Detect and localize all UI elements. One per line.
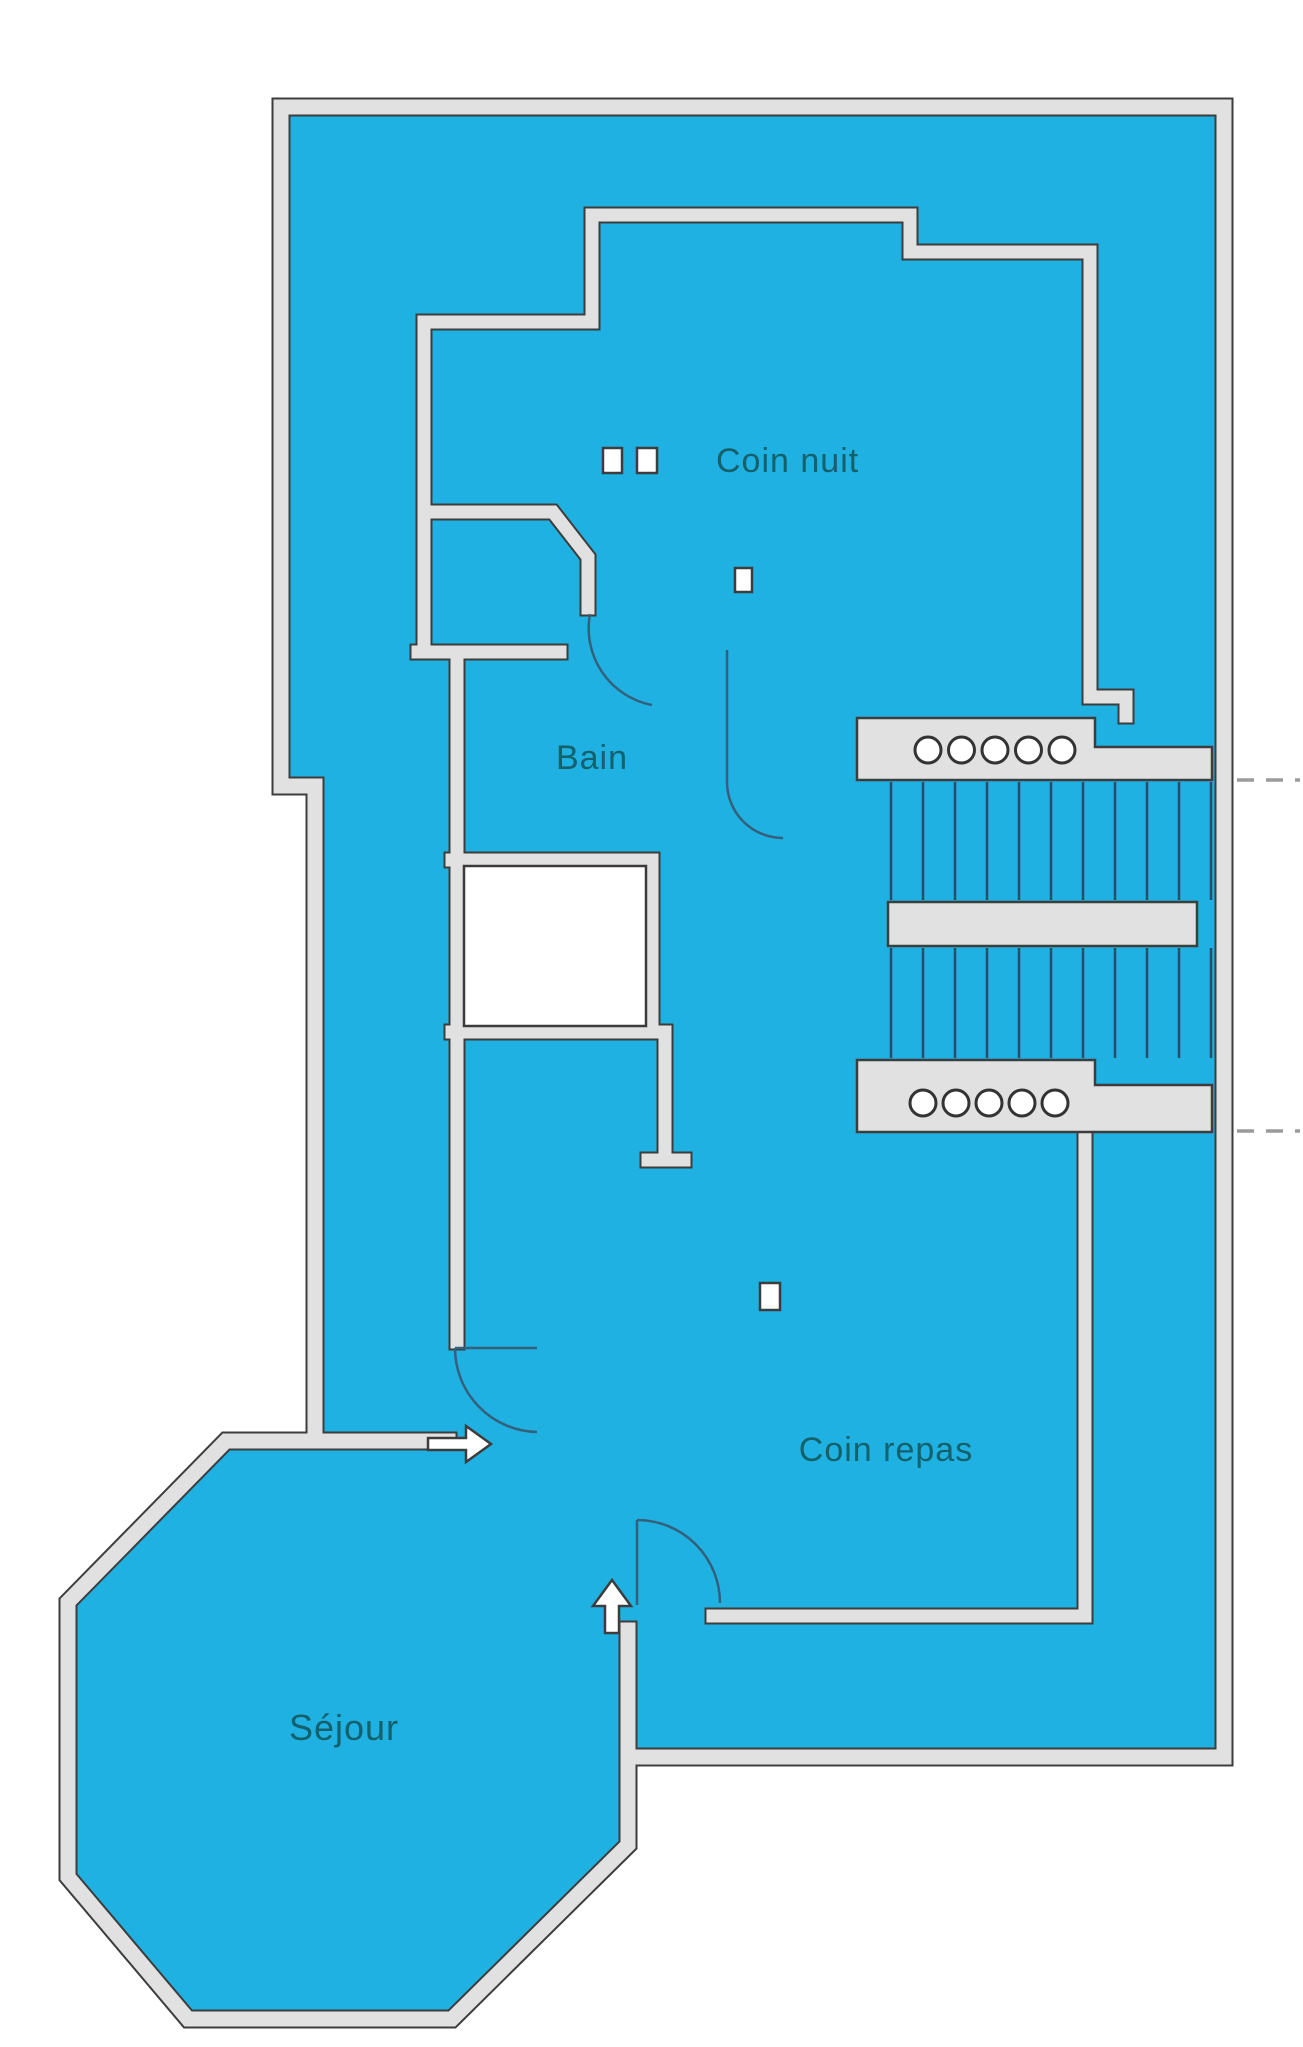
baluster-circle-icon [1049, 737, 1075, 763]
post-square [735, 568, 752, 592]
baluster-circle-icon [915, 737, 941, 763]
stair-landing-middle [888, 902, 1197, 946]
room-label-coin-nuit: Coin nuit [716, 442, 859, 480]
room-label-bain: Bain [556, 739, 628, 777]
baluster-circle-icon [976, 1090, 1002, 1116]
floor-plan-svg: Coin nuit Bain Coin repas Séjour [0, 0, 1303, 2047]
floor-plan-image: Coin nuit Bain Coin repas Séjour [0, 0, 1303, 2047]
baluster-circle-icon [1042, 1090, 1068, 1116]
section-dash-lines [1237, 780, 1300, 1131]
baluster-circle-icon [943, 1090, 969, 1116]
baluster-circle-icon [949, 737, 975, 763]
baluster-circle-icon [1016, 737, 1042, 763]
baluster-circle-icon [1009, 1090, 1035, 1116]
post-square [603, 448, 622, 473]
baluster-circle-icon [910, 1090, 936, 1116]
post-square [760, 1283, 780, 1310]
baluster-circle-icon [982, 737, 1008, 763]
room-label-sejour: Séjour [289, 1707, 399, 1748]
shaft-void [464, 866, 646, 1026]
room-label-coin-repas: Coin repas [799, 1431, 973, 1469]
post-square [637, 448, 657, 473]
